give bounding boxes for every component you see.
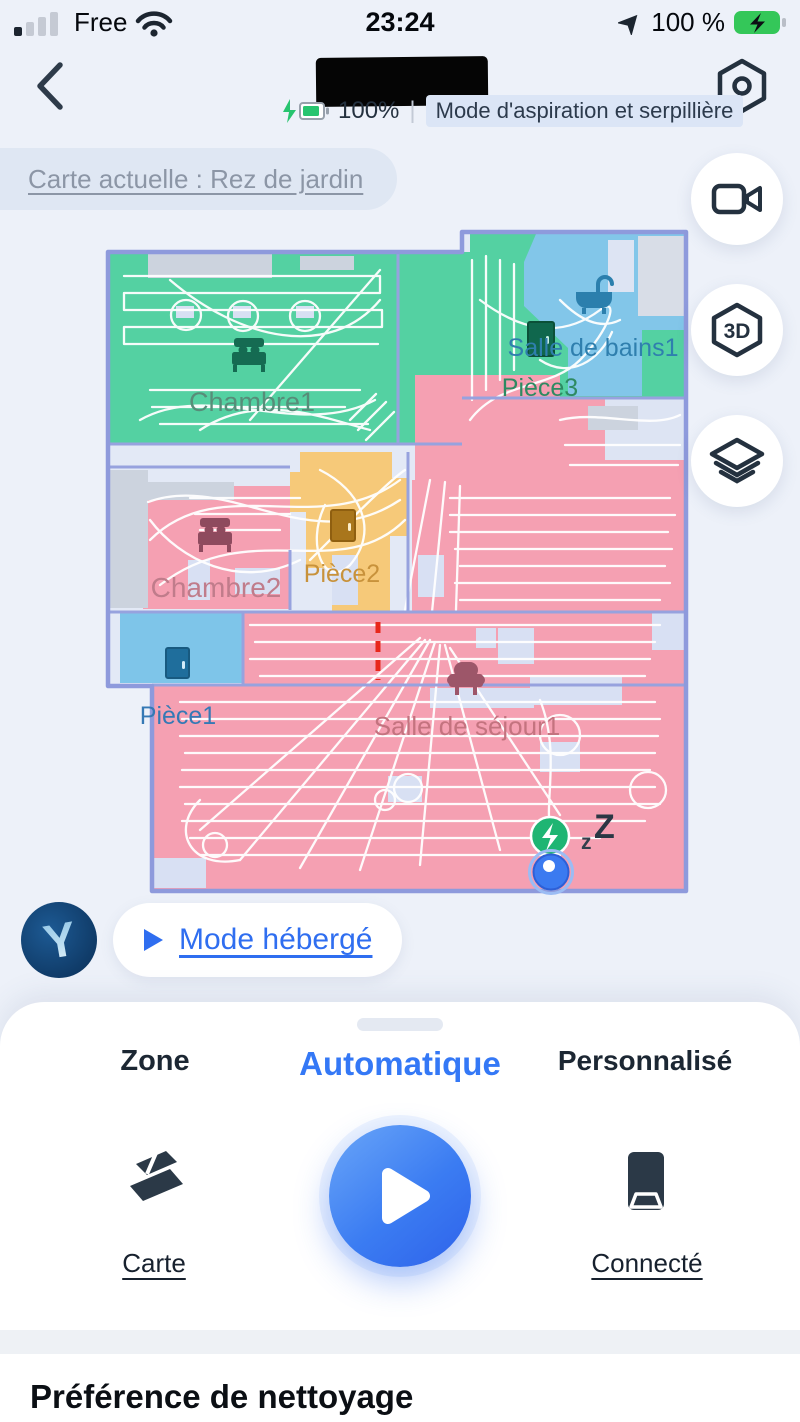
start-cleaning-button[interactable] [329,1125,471,1267]
tab-zone[interactable]: Zone [120,1045,189,1078]
play-icon [364,1160,436,1232]
map-select-label[interactable]: Carte [122,1248,186,1279]
map-icon [130,1151,183,1201]
room-label-piece2: Pièce2 [304,560,380,588]
obstacle-patch [110,470,148,608]
robot-marker[interactable] [530,851,573,894]
obstacle-patch [300,256,354,270]
door-icon [166,648,189,678]
map-outside-top [104,226,464,250]
obstacle-patch [148,254,272,278]
room-label-salle-de-sejour1: Salle de séjour1 [374,711,560,741]
room-label-salle-de-bains1: Salle de bains1 [508,334,679,362]
tab-automatique[interactable]: Automatique [299,1045,501,1083]
sleep-z-small: z [581,831,592,854]
map-select-button[interactable] [120,1142,188,1216]
dock-status-label[interactable]: Connecté [591,1248,702,1279]
room-label-piece1: Pièce1 [140,702,216,730]
dock-status-button[interactable] [623,1150,669,1218]
layers-icon [708,437,766,485]
hosted-mode-button[interactable]: Mode hébergé [113,903,402,977]
room-label-chambre1: Chambre1 [189,387,315,417]
sheet-drag-handle[interactable] [357,1018,443,1031]
svg-text:3D: 3D [724,320,751,343]
3d-view-button[interactable]: 3D [691,284,783,376]
door-icon [331,510,355,541]
map-layers-button[interactable] [691,415,783,507]
dock-icon [628,1152,664,1210]
play-small-icon [141,927,165,953]
cleaning-preference-title: Préférence de nettoyage [30,1378,413,1416]
robot-brand-avatar[interactable]: Y [20,901,98,979]
room-label-chambre2: Chambre2 [151,572,282,603]
3d-view-icon: 3D [708,301,766,359]
section-divider [0,1330,800,1354]
sleep-z-big: Z [594,808,615,846]
app-screen: Free 23:24 100 % [0,0,800,1422]
unexplored-patch [638,236,684,316]
tab-personnalise[interactable]: Personnalisé [558,1045,732,1077]
video-camera-icon [711,179,763,219]
camera-view-button[interactable] [691,153,783,245]
hosted-mode-label: Mode hébergé [179,923,372,957]
room-label-piece3: Pièce3 [502,374,578,402]
